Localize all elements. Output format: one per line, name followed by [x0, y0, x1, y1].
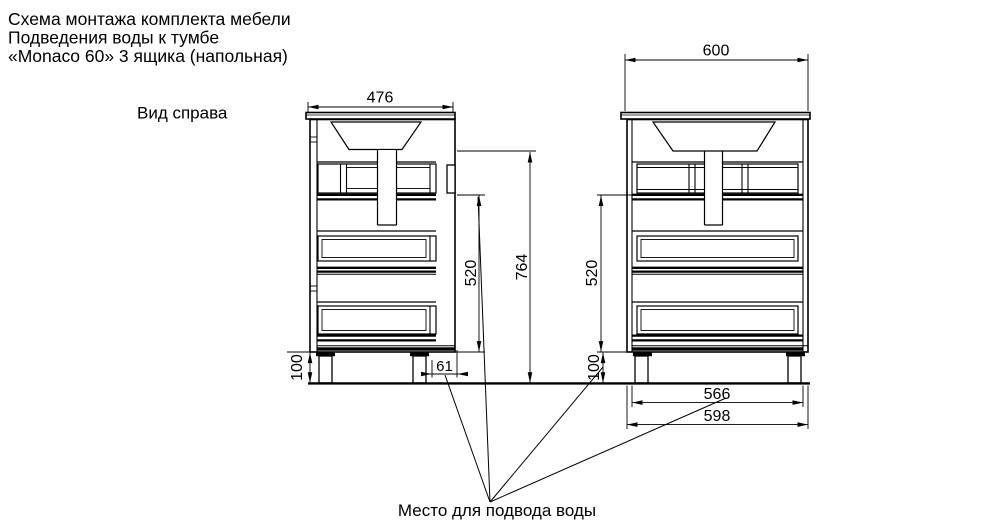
countertop-side: [306, 113, 455, 120]
drawer-handle-side: [447, 165, 455, 193]
drawer-row-3-front: [632, 302, 803, 340]
left-cabinet-side-view: [306, 113, 455, 384]
right-cabinet-front-view: [621, 113, 810, 384]
view-right-label: Вид справа: [137, 104, 228, 123]
drawing-page: Схема монтажа комплекта мебели Подведени…: [0, 0, 1000, 529]
dim-520-right-label: 520: [584, 260, 601, 287]
cabinet-bottom-front: [632, 346, 808, 351]
sink-basin-side: [331, 122, 421, 150]
dim-566-label: 566: [704, 386, 731, 403]
hinge-tick: [310, 137, 317, 142]
furniture-mounting-diagram: Схема монтажа комплекта мебели Подведени…: [0, 0, 1000, 529]
dim-61-label: 61: [436, 358, 453, 375]
dim-476-label: 476: [367, 90, 394, 107]
water-supply-note: Место для подвода воды: [398, 501, 596, 520]
dim-100-left-label: 100: [289, 354, 306, 381]
drawer-row-1-side: [317, 162, 436, 199]
title-line-3: «Monaco 60» 3 ящика (напольная): [8, 46, 288, 66]
drawer-row-3-side: [317, 302, 436, 340]
dim-598-label: 598: [704, 408, 731, 425]
hinge-tick: [310, 286, 317, 291]
countertop-front: [621, 113, 810, 120]
drawer-row-2-side: [317, 231, 436, 274]
dim-764-label: 764: [514, 254, 531, 281]
drain-pipe-front: [705, 151, 723, 225]
title-line-1: Схема монтажа комплекта мебели: [8, 9, 291, 29]
dim-600-label: 600: [703, 43, 730, 60]
legs-side: [316, 352, 429, 383]
dim-600: [625, 54, 808, 111]
dim-100-right-label: 100: [586, 354, 603, 381]
dim-520-left-label: 520: [463, 260, 480, 287]
title-line-2: Подведения воды к тумбе: [8, 28, 219, 48]
cabinet-bottom-side: [317, 346, 455, 351]
drain-pipe-side: [378, 150, 397, 226]
sink-basin-front: [653, 122, 775, 151]
drawer-row-2-front: [632, 231, 803, 274]
legs-front: [633, 352, 805, 383]
dimensions: [287, 54, 808, 429]
